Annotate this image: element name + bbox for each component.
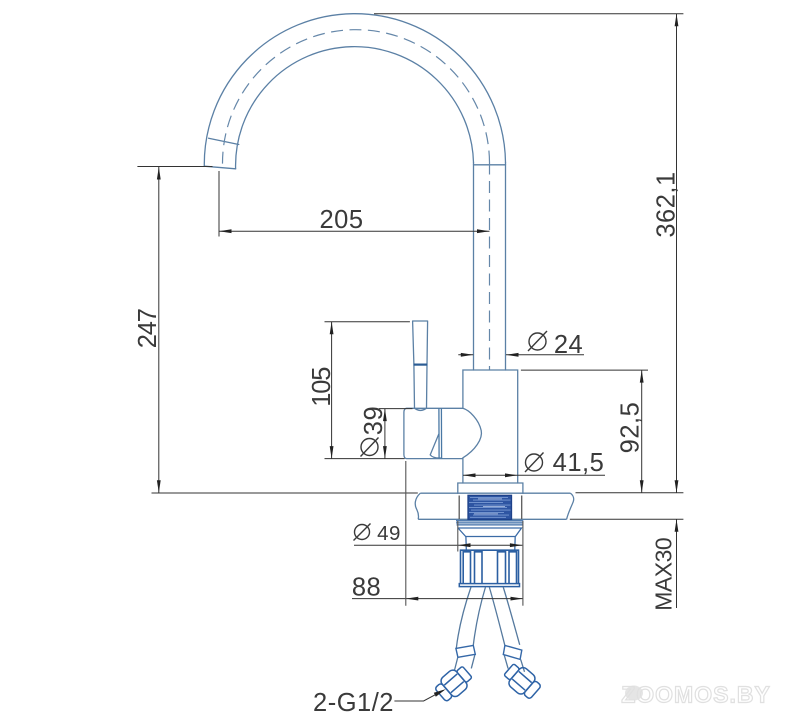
svg-text:MAX30: MAX30 bbox=[651, 538, 677, 611]
svg-text:49: 49 bbox=[377, 522, 401, 545]
svg-text:24: 24 bbox=[554, 331, 583, 359]
svg-text:105: 105 bbox=[308, 367, 336, 407]
svg-text:362,1: 362,1 bbox=[653, 171, 681, 237]
svg-text:205: 205 bbox=[319, 206, 363, 234]
svg-text:247: 247 bbox=[134, 309, 162, 348]
svg-text:39: 39 bbox=[360, 406, 388, 435]
svg-text:41,5: 41,5 bbox=[553, 449, 605, 477]
svg-text:92,5: 92,5 bbox=[617, 402, 645, 454]
svg-text:2-G1/2: 2-G1/2 bbox=[313, 689, 394, 717]
svg-text:ZOOMOS.BY: ZOOMOS.BY bbox=[621, 682, 771, 708]
svg-text:88: 88 bbox=[352, 573, 381, 601]
